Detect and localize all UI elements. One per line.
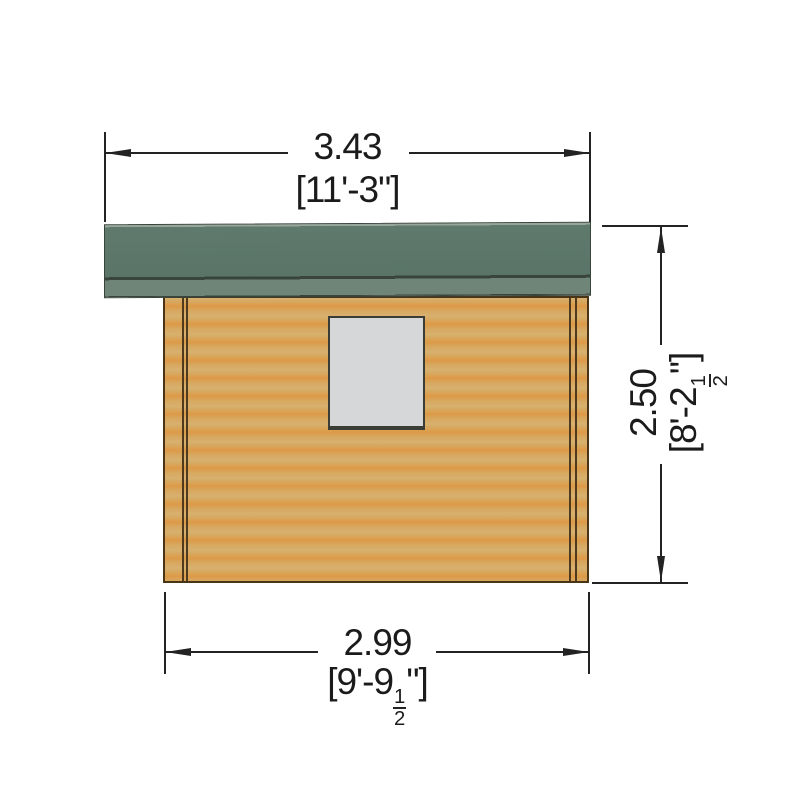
corner-trim-right (569, 298, 587, 581)
dim-bottom-imperial-close: "] (406, 661, 427, 702)
dim-right-text-group: 2.50 [8'-212"] (632, 318, 724, 488)
corner-trim-right-joint (575, 298, 577, 581)
dim-right-fraction: 12 (689, 374, 732, 387)
corner-trim-left (165, 298, 188, 581)
dim-bottom-fraction: 12 (393, 687, 406, 730)
dim-top-imperial: [11'-3"] (105, 170, 590, 210)
dim-right-imperial: [8'-212"] (664, 353, 731, 454)
shed-window (328, 316, 425, 430)
fraction-denominator: 2 (711, 375, 731, 386)
dim-top-metric: 3.43 (105, 127, 590, 167)
dim-right-extension-top (602, 225, 688, 227)
dim-right-imperial-close: "] (663, 353, 704, 374)
dim-right-imperial-open: [8'-2 (663, 387, 704, 453)
dim-bottom-metric: 2.99 (165, 623, 590, 663)
dim-right-arrow-up (657, 227, 665, 253)
dim-bottom-imperial-open: [9'-9 (327, 661, 393, 702)
corner-trim-left-joint (182, 298, 184, 581)
shed-roof (104, 222, 591, 299)
dim-bottom-imperial: [9'-912"] (165, 662, 590, 729)
fraction-numerator: 1 (689, 374, 711, 387)
fraction-denominator: 2 (394, 709, 405, 729)
dim-right-extension-bottom (592, 582, 688, 584)
dim-right-metric: 2.50 (624, 369, 664, 437)
dim-right-arrow-down (657, 556, 665, 582)
elevation-drawing: 3.43 [11'-3"] 2.99 [9'-912"] 2.50 [8'-21… (0, 0, 800, 800)
fraction-numerator: 1 (393, 687, 406, 709)
